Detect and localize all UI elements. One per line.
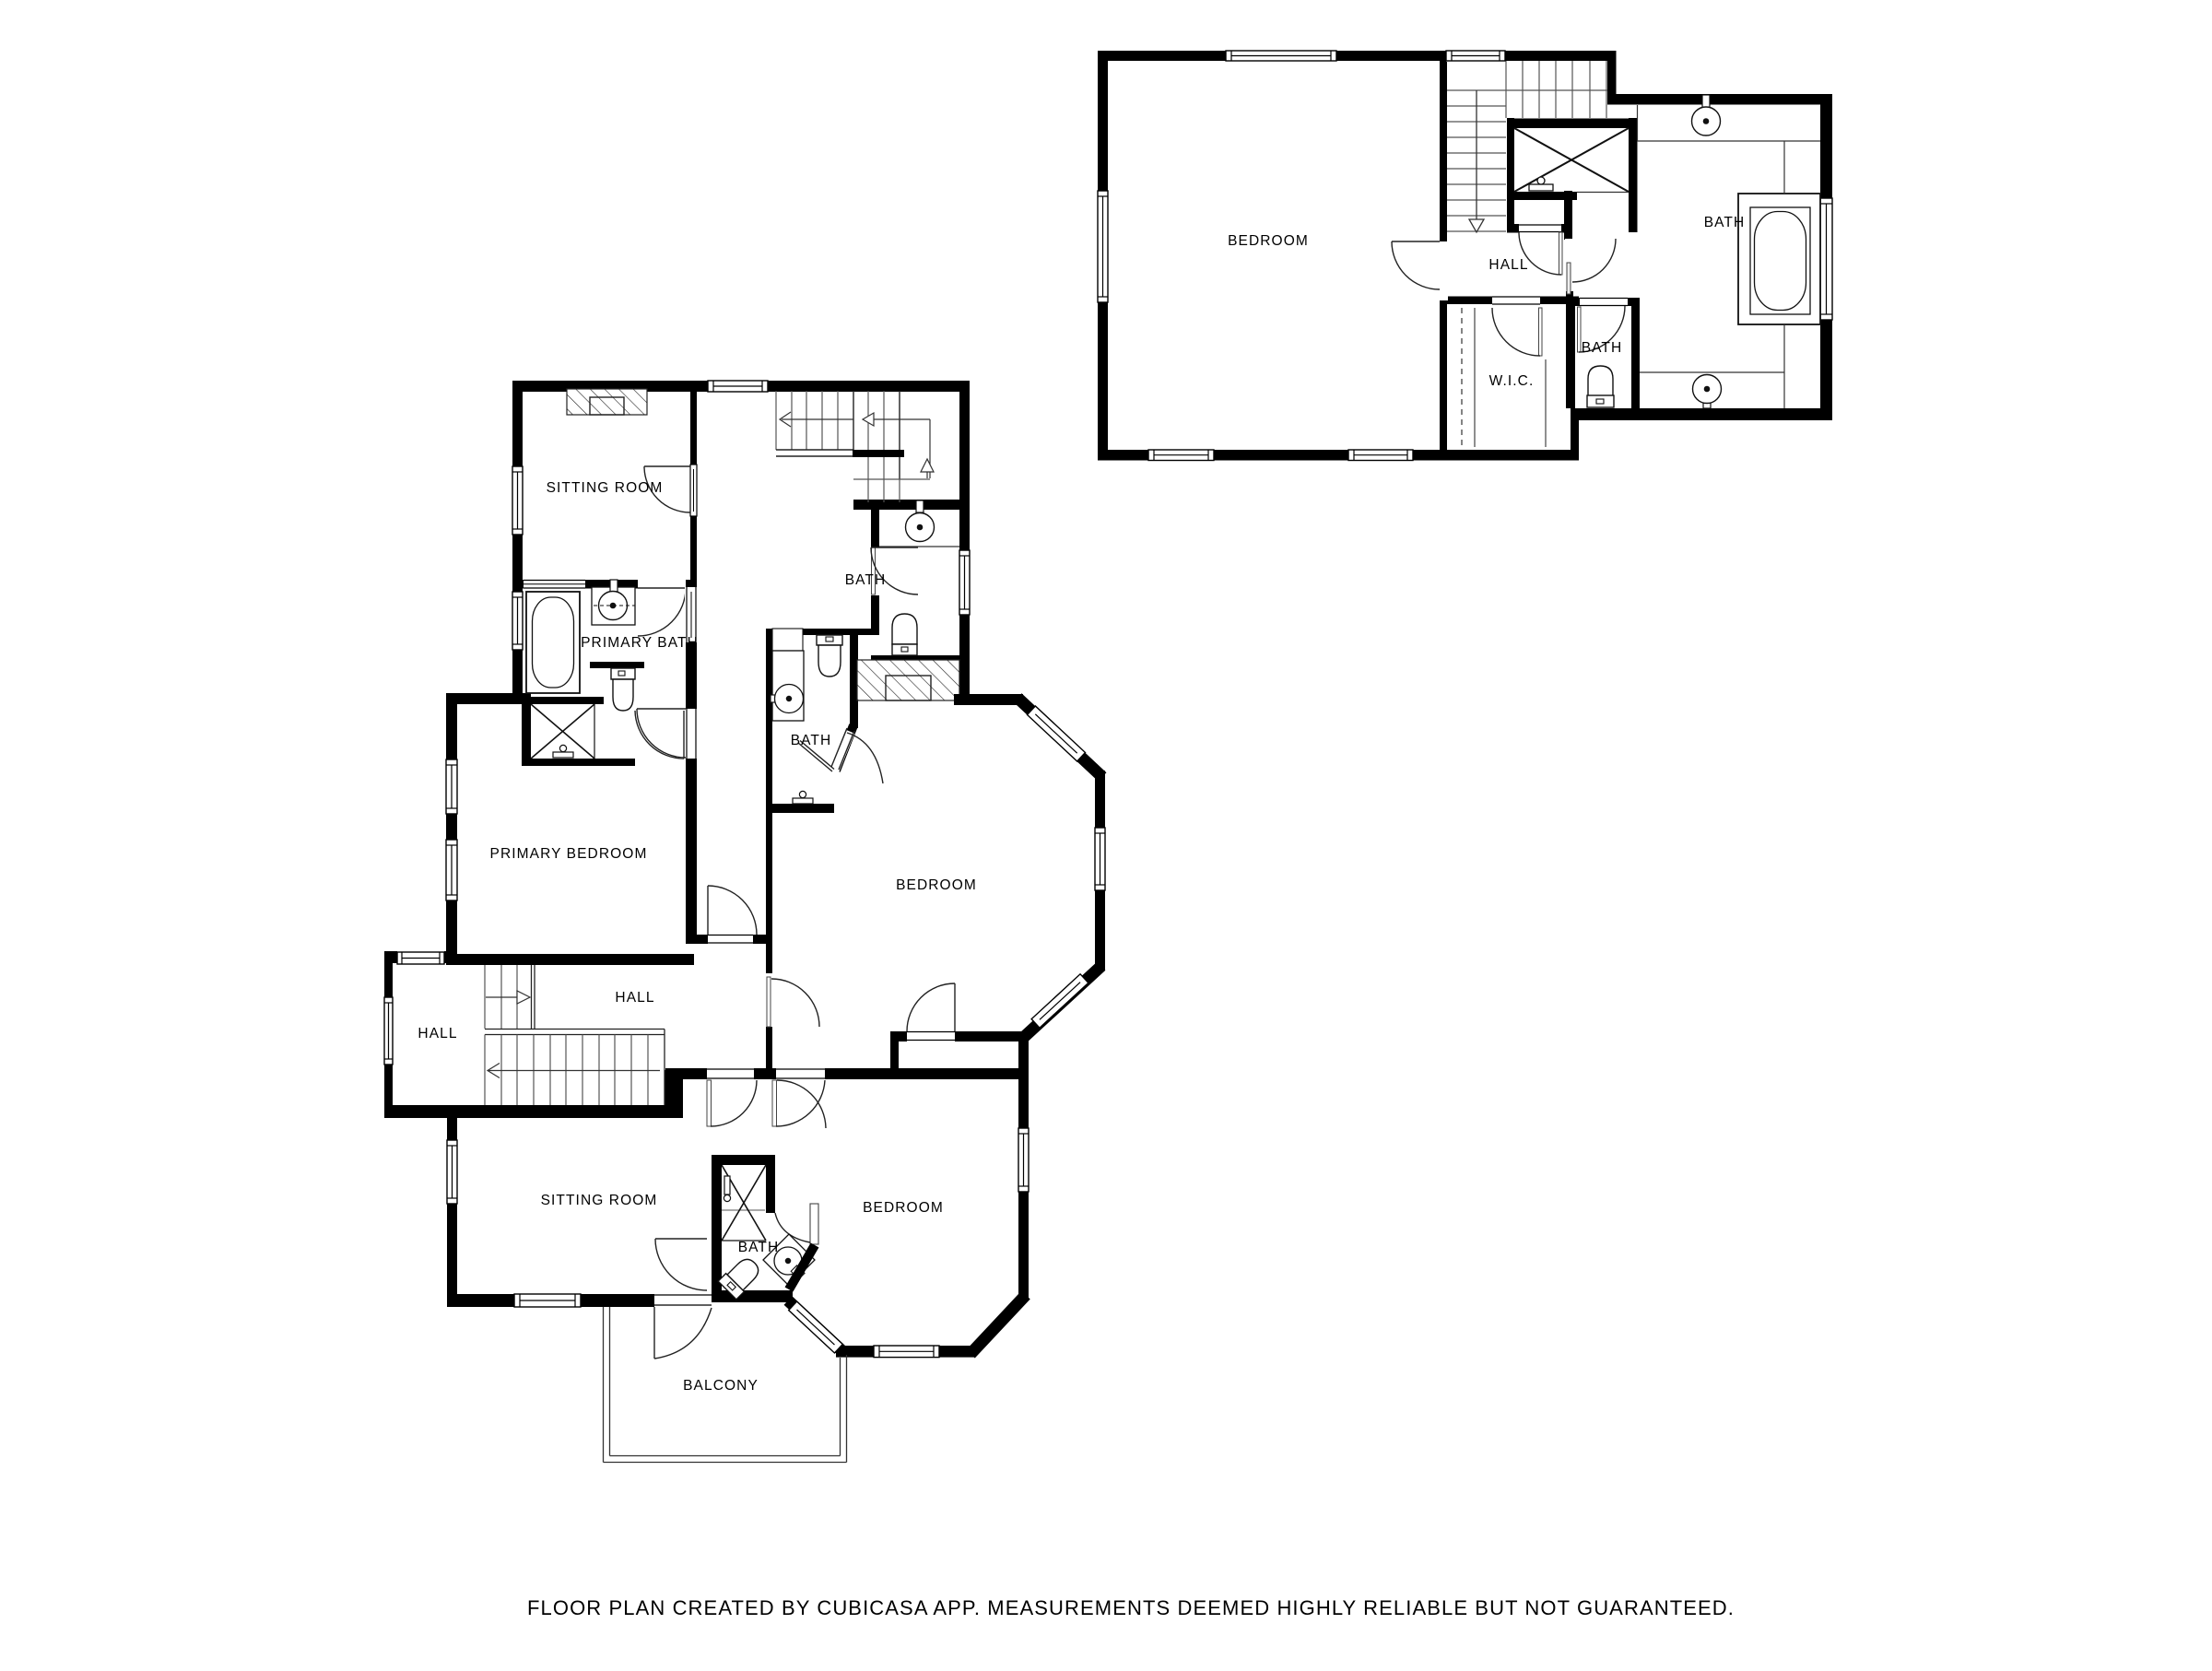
svg-text:BEDROOM: BEDROOM (1228, 233, 1309, 249)
svg-text:BEDROOM: BEDROOM (863, 1200, 944, 1216)
svg-text:W.I.C.: W.I.C. (1489, 373, 1535, 389)
svg-text:HALL: HALL (1488, 257, 1528, 273)
svg-text:HALL: HALL (418, 1026, 457, 1041)
svg-text:BATH: BATH (738, 1240, 780, 1255)
svg-text:BEDROOM: BEDROOM (896, 877, 977, 893)
svg-text:BATH: BATH (1704, 215, 1746, 230)
svg-text:BATH: BATH (791, 733, 832, 748)
svg-text:BATH: BATH (845, 572, 887, 588)
svg-text:SITTING ROOM: SITTING ROOM (541, 1193, 658, 1208)
svg-text:BATH: BATH (1582, 340, 1623, 356)
svg-text:FLOOR PLAN CREATED BY CUBICASA: FLOOR PLAN CREATED BY CUBICASA APP. MEAS… (527, 1596, 1735, 1619)
svg-text:BALCONY: BALCONY (683, 1378, 759, 1394)
svg-text:PRIMARY BATH: PRIMARY BATH (581, 635, 699, 651)
svg-text:SITTING ROOM: SITTING ROOM (547, 480, 664, 496)
svg-text:HALL: HALL (615, 990, 654, 1006)
svg-text:PRIMARY BEDROOM: PRIMARY BEDROOM (490, 846, 648, 862)
